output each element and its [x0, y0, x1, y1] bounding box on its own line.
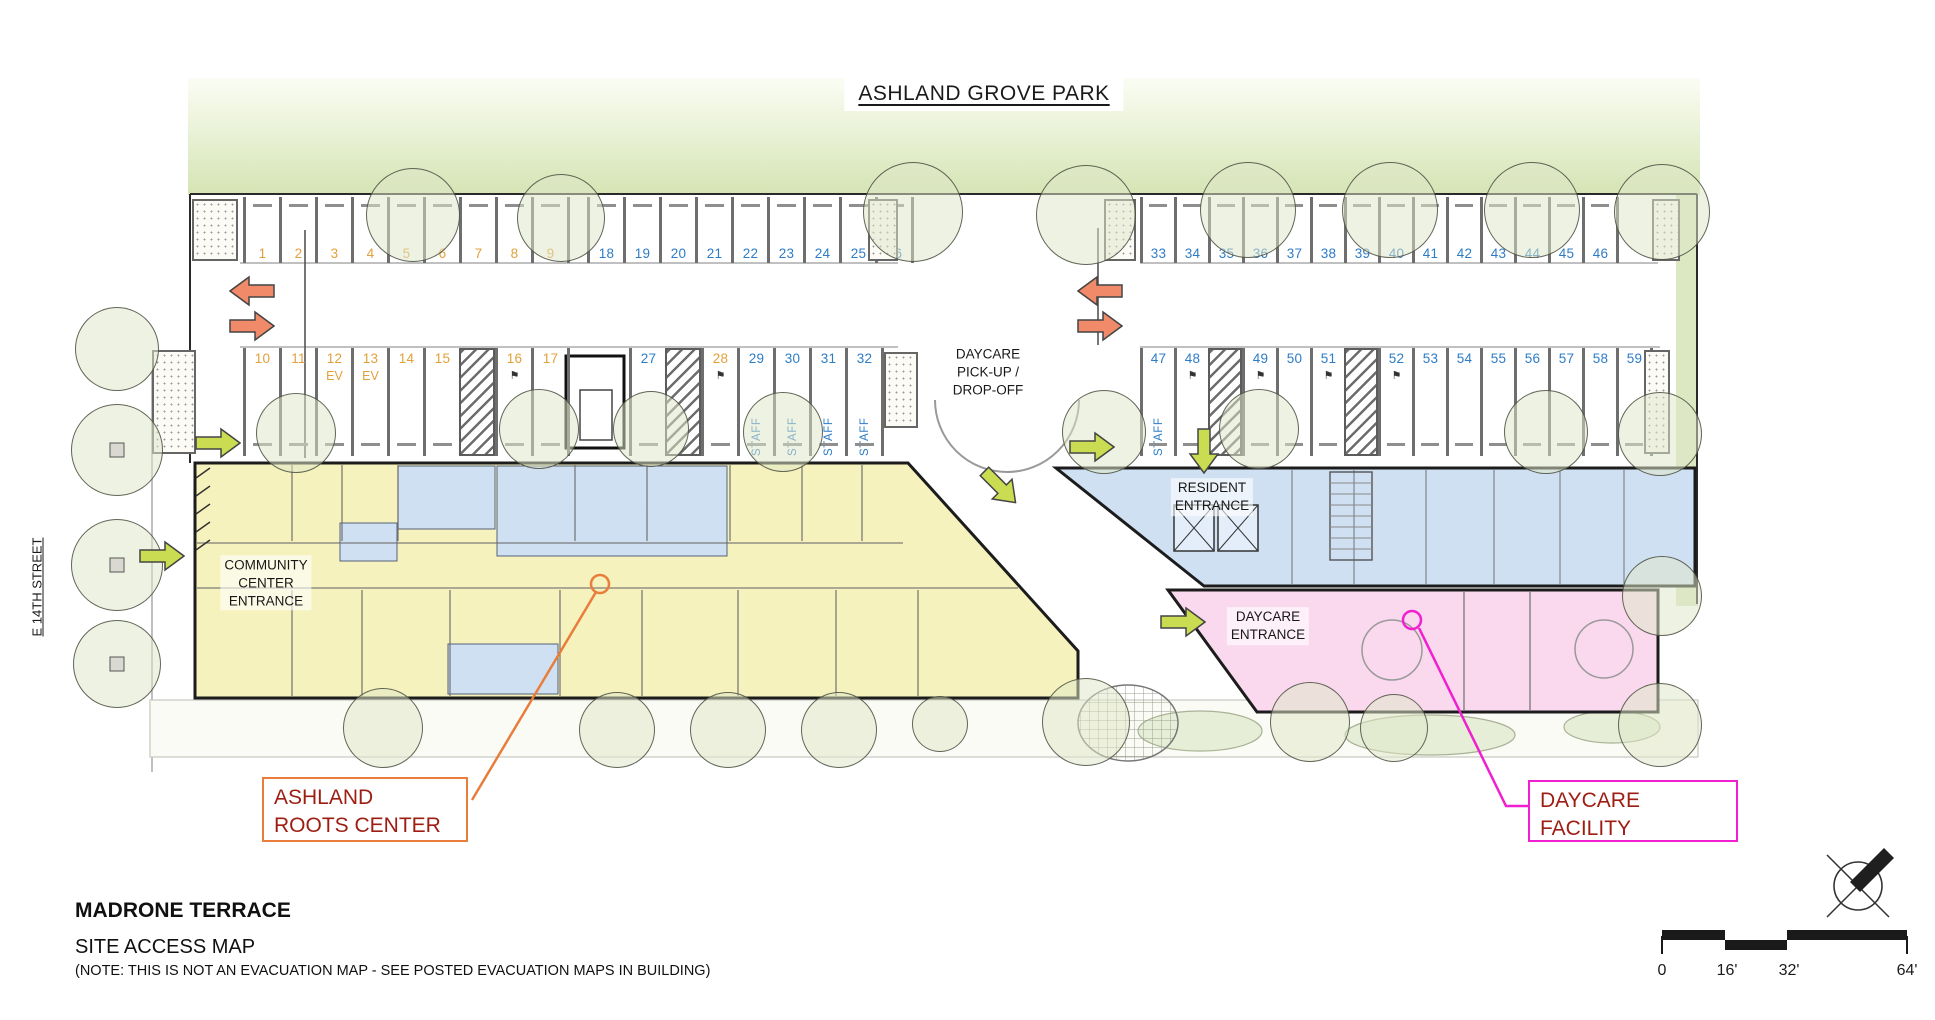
site-access-map-sheet: 123456789181920212223242526101112EV13EV1…: [0, 0, 1935, 1020]
daycare-facility-callout: DAYCARE FACILITY: [1528, 780, 1738, 842]
ashland-roots-center-callout: ASHLAND ROOTS CENTER: [262, 777, 468, 842]
